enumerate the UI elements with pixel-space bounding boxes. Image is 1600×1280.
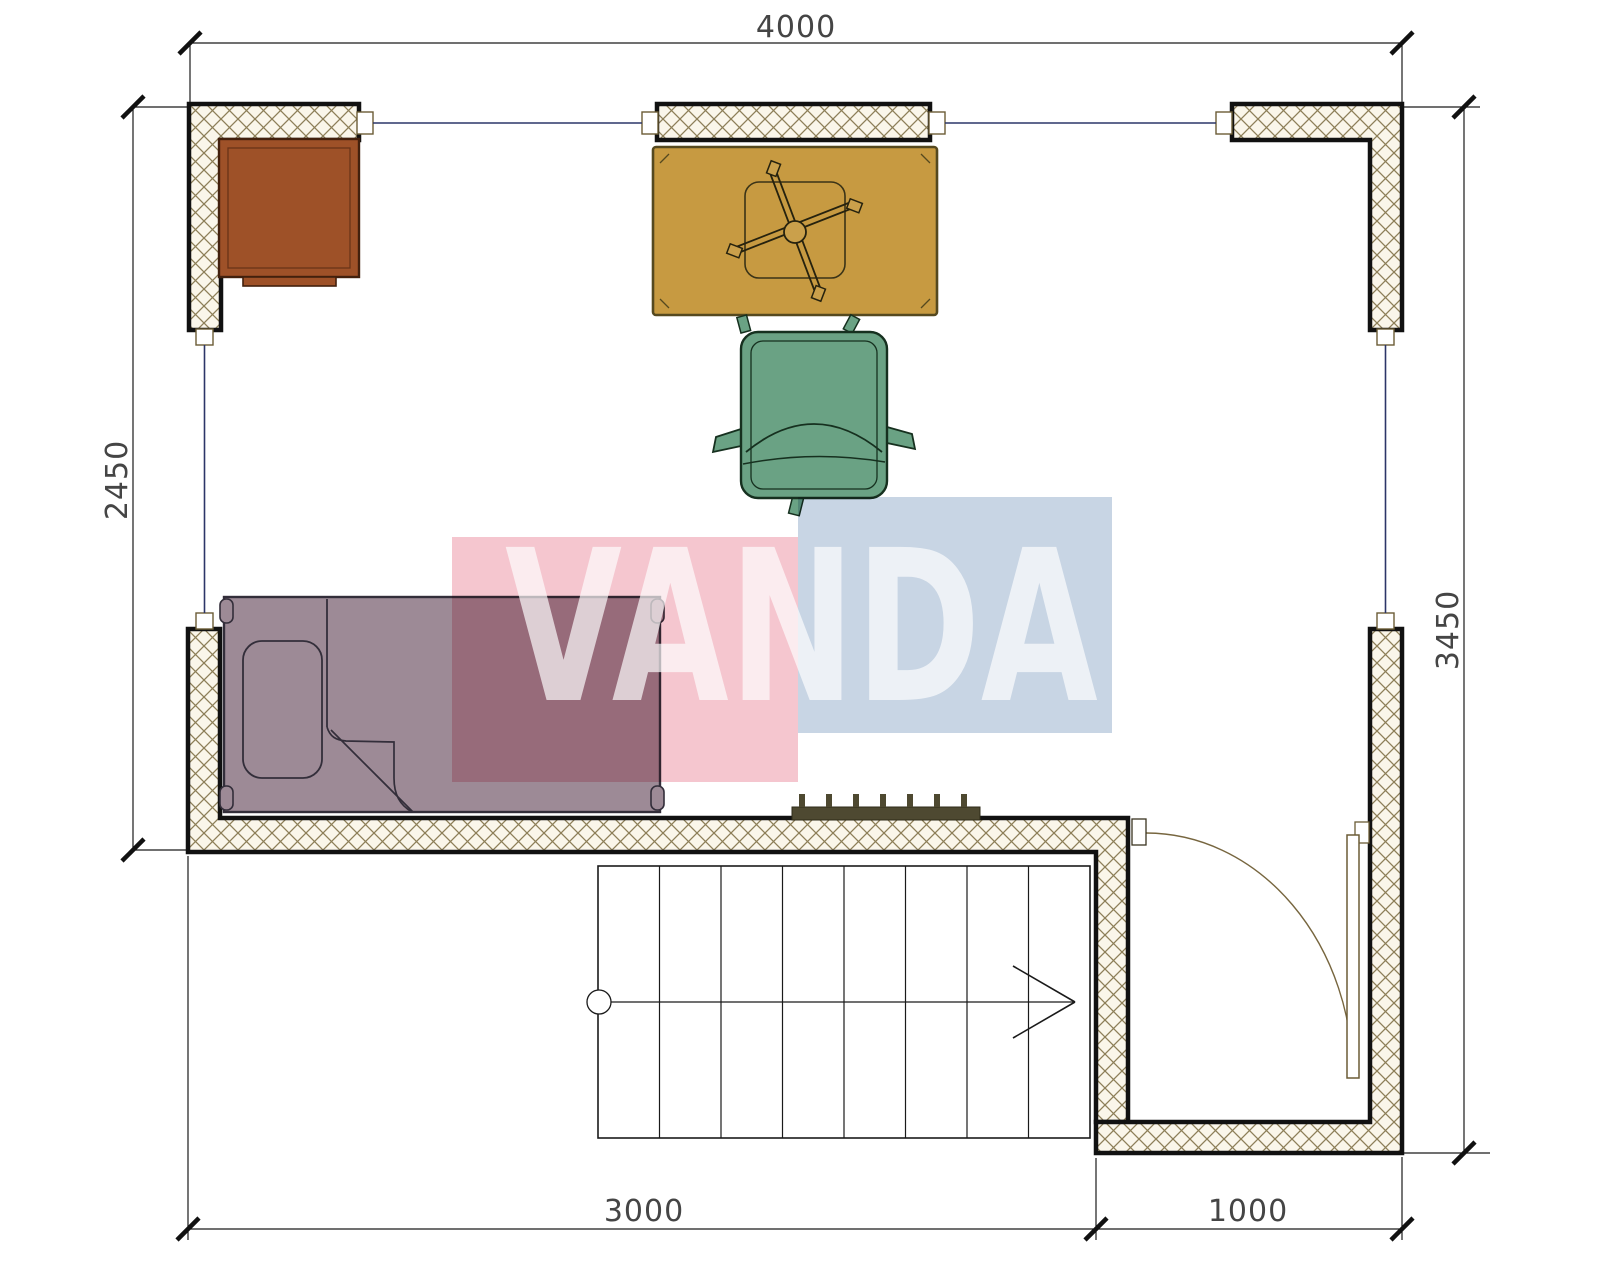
window-connector bbox=[1377, 329, 1394, 345]
door-swing-arc bbox=[1146, 833, 1353, 1078]
desk bbox=[219, 139, 359, 286]
dim-bottom-left-label: 3000 bbox=[604, 1194, 684, 1229]
entry-door bbox=[1132, 819, 1369, 1078]
door-frame-left bbox=[1132, 819, 1146, 845]
window-connector bbox=[929, 112, 945, 134]
window-connector bbox=[642, 112, 658, 134]
dim-right-label: 3450 bbox=[1431, 590, 1466, 670]
armrest-left bbox=[713, 429, 741, 452]
bed-post bbox=[220, 599, 233, 623]
floor-plan-canvas: 4000 2450 3450 3000 1000 bbox=[0, 0, 1600, 1280]
watermark-text: VANDA bbox=[505, 506, 1098, 750]
dim-top-label: 4000 bbox=[756, 10, 836, 45]
bed-post bbox=[220, 786, 233, 810]
walk-line-start bbox=[587, 990, 611, 1014]
armchair bbox=[713, 315, 915, 516]
dim-left-label: 2450 bbox=[100, 440, 135, 520]
staircase bbox=[587, 866, 1090, 1138]
bed-post bbox=[651, 786, 664, 810]
door-leaf bbox=[1347, 835, 1359, 1078]
caster bbox=[737, 315, 751, 333]
dim-bottom-right-label: 1000 bbox=[1208, 1194, 1288, 1229]
watermark: VANDA bbox=[452, 497, 1112, 782]
window-connector bbox=[1377, 613, 1394, 629]
window-connector bbox=[357, 112, 373, 134]
window-connector bbox=[196, 329, 213, 345]
window-connector bbox=[1216, 112, 1232, 134]
caster bbox=[843, 315, 859, 334]
window-connector bbox=[196, 613, 213, 629]
desk-drawer bbox=[243, 277, 336, 286]
wall-top-right bbox=[1232, 104, 1402, 330]
armrest-right bbox=[887, 427, 915, 449]
radiator bbox=[792, 794, 980, 820]
wall-window-top bbox=[657, 104, 930, 140]
